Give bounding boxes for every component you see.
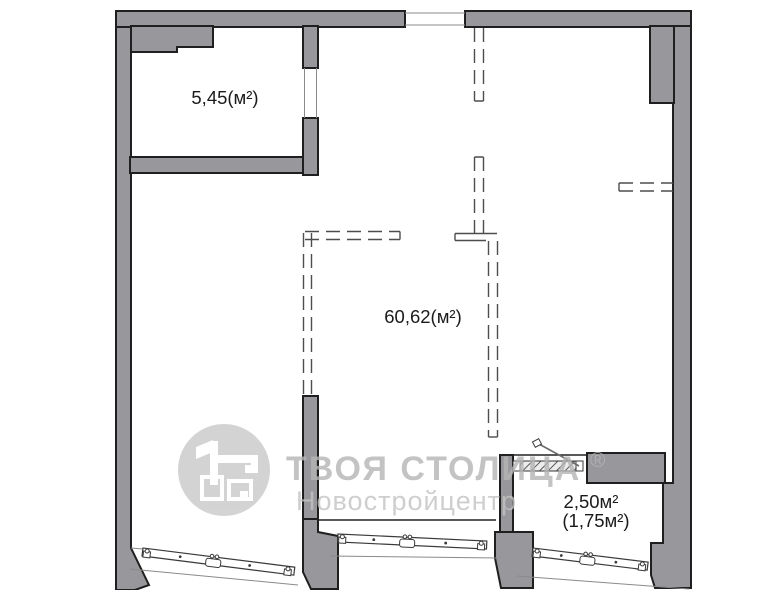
window-fitting-icon: [479, 541, 483, 545]
window-handle-icon: [215, 555, 219, 559]
window-fitting-icon: [340, 535, 344, 539]
window-handle-icon: [579, 556, 595, 566]
window-fitting-icon: [286, 567, 290, 571]
balcony-door-leaf-end: [533, 439, 542, 448]
watermark-brand-text: ТВОЯ СТОЛИЦА: [286, 450, 581, 488]
window-handle-icon: [408, 535, 412, 539]
window-fitting-icon: [145, 549, 149, 553]
storeroom-door-frame: [305, 68, 317, 118]
balcony-window: [532, 546, 649, 572]
partition-junction: [455, 234, 497, 241]
storeroom-top-thick-wall: [131, 26, 213, 52]
floor-plan-canvas: 5,45(м²) 60,62(м²) 2,50м² (1,75м²) ТВОЯ …: [0, 0, 779, 590]
balcony-left-foot: [495, 532, 533, 588]
window-handle-icon: [210, 554, 214, 558]
balcony-area-label: 2,50м²: [564, 491, 619, 512]
window-handle-icon: [205, 558, 221, 568]
partition-right-horizontal: [619, 183, 673, 191]
watermark: ТВОЯ СТОЛИЦА ® Новостройцентр: [178, 424, 606, 516]
top-wall-right: [465, 11, 691, 27]
storeroom-right-wall-lower: [303, 118, 318, 175]
dashed-partitions: [304, 28, 674, 437]
watermark-subtitle-text: Новостройцентр: [296, 486, 517, 516]
partition-center-vertical-lower: [489, 241, 498, 437]
partition-center-door-caps: [475, 101, 484, 157]
top-wall-left: [116, 11, 405, 27]
middle-window: [338, 532, 487, 551]
partition-center-vertical-upper: [475, 28, 484, 233]
middle-window-sill-line: [330, 556, 498, 558]
balcony-reduced-area-label: (1,75м²): [562, 510, 629, 531]
registered-trademark-icon: ®: [590, 449, 606, 472]
top-wall-window-frame: [405, 13, 465, 25]
storeroom-bottom-wall: [130, 157, 303, 173]
center-pier-foot: [303, 519, 338, 589]
storeroom-area-label: 5,45(м²): [191, 87, 258, 108]
window-handle-icon: [399, 539, 414, 548]
window-handle-icon: [589, 553, 593, 557]
window-handle-icon: [403, 535, 407, 539]
partition-left-vertical: [304, 233, 312, 396]
living-space-area-label: 60,62(м²): [384, 306, 462, 327]
partition-horizontal-left: [305, 232, 400, 240]
window-handle-icon: [584, 552, 588, 556]
floor-plan: 5,45(м²) 60,62(м²) 2,50м² (1,75м²) ТВОЯ …: [0, 0, 779, 590]
storeroom-right-wall-upper: [303, 26, 318, 68]
top-right-corner-block: [650, 26, 674, 103]
window-fitting-icon: [640, 562, 644, 566]
left-wall: [116, 11, 149, 590]
right-wall: [651, 26, 691, 588]
windows: [142, 532, 649, 577]
window-fitting-icon: [535, 549, 539, 553]
